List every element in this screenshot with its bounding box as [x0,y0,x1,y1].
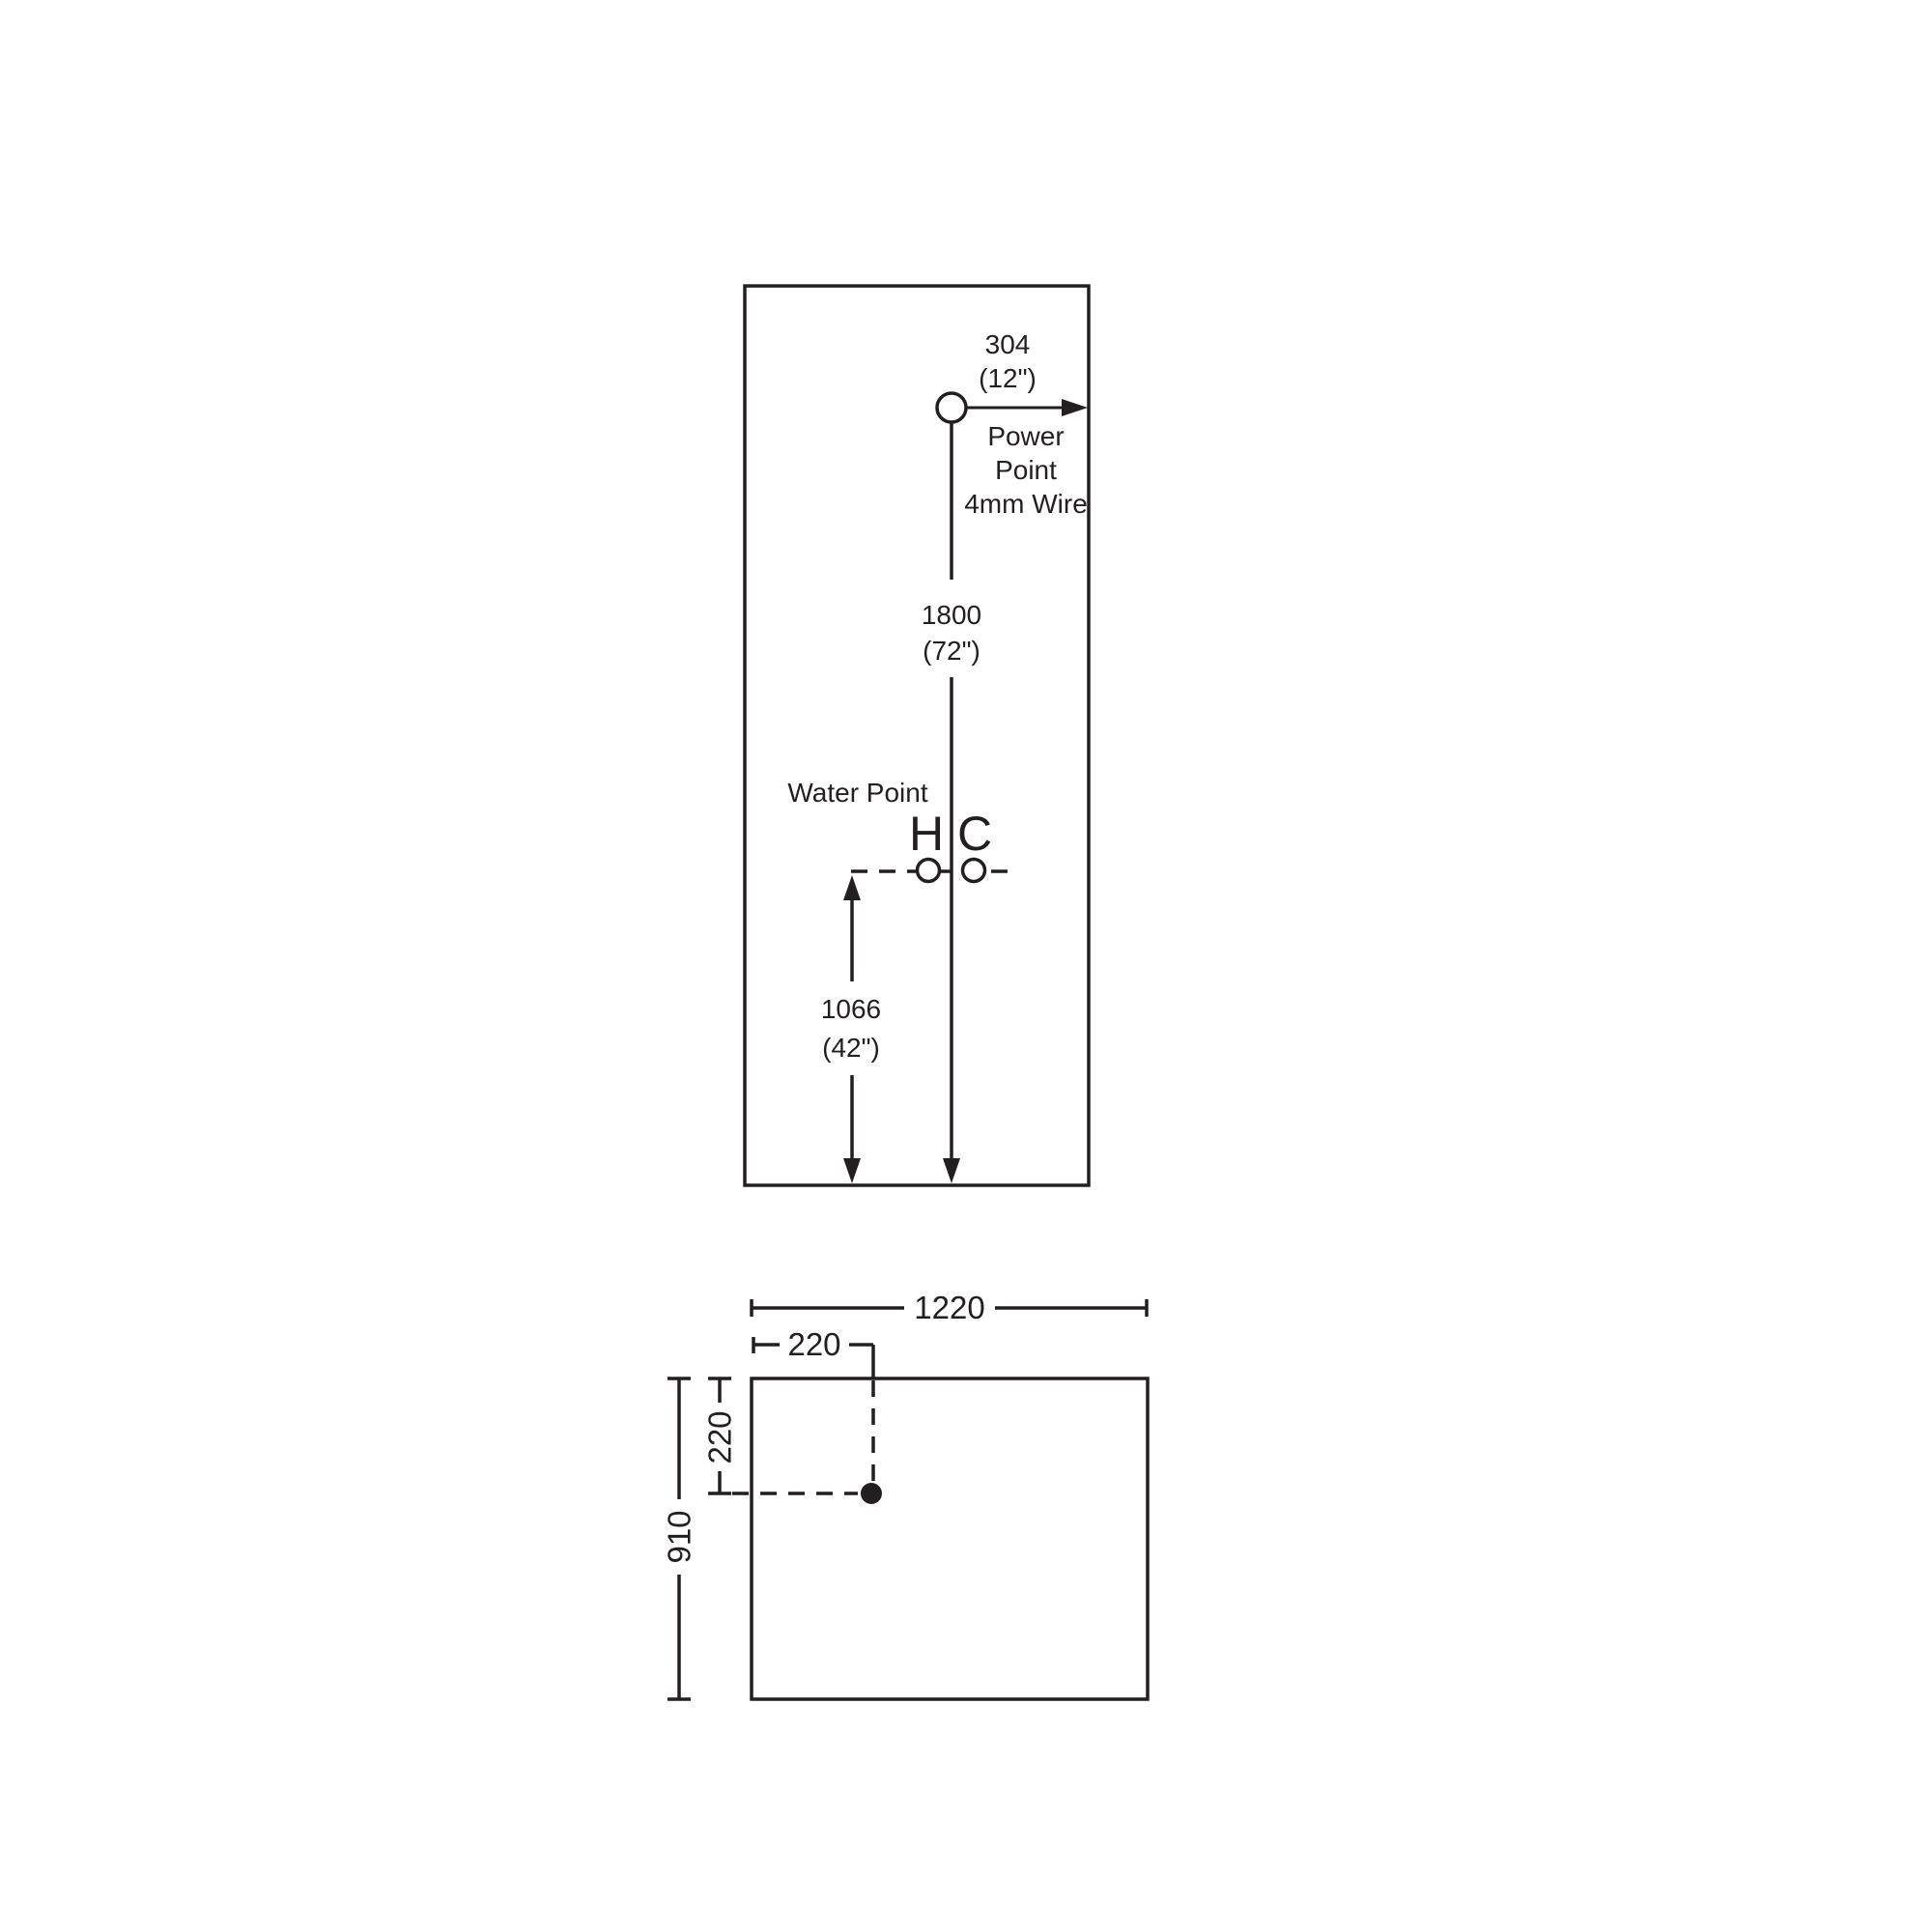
cold-tap-label: C [957,807,992,861]
power-point-height-inches-label: (72") [923,636,980,666]
water-point-label: Water Point [787,778,927,808]
diagram-canvas: 304 (12") Power Point 4mm Wire 1800 (72"… [0,0,1932,1932]
water-height-inches-label: (42") [822,1033,880,1063]
plan-inlet-point-symbol [861,1483,882,1504]
plan-offset-x-label: 220 [787,1326,840,1362]
water-height-arrowhead-down-icon [843,1158,861,1183]
installation-diagram: 304 (12") Power Point 4mm Wire 1800 (72"… [0,0,1932,1932]
plan-width-label: 1220 [914,1290,984,1325]
power-point-height-arrowhead-icon [943,1158,960,1183]
hot-tap-symbol [918,860,940,882]
water-height-mm-label: 1066 [821,994,881,1024]
cold-tap-symbol [963,860,985,882]
power-point-offset-arrowhead-icon [1062,399,1088,416]
hot-tap-label: H [909,807,944,861]
plan-tray-outline [752,1378,1148,1699]
power-point-label-line1: Power [987,421,1064,451]
power-point-label-line3: 4mm Wire [964,489,1088,519]
power-point-offset-inches-label: (12") [979,363,1037,393]
water-height-arrowhead-up-icon [843,875,861,900]
elevation-view: 304 (12") Power Point 4mm Wire 1800 (72"… [745,286,1089,1185]
plan-depth-label: 910 [662,1510,697,1563]
power-point-symbol [937,393,966,422]
power-point-height-mm-label: 1800 [922,600,981,630]
plan-offset-y-label: 220 [702,1410,738,1463]
plan-view: 1220 220 220 910 [662,1290,1148,1699]
power-point-label-line2: Point [995,455,1057,485]
power-point-offset-mm-label: 304 [985,329,1031,359]
